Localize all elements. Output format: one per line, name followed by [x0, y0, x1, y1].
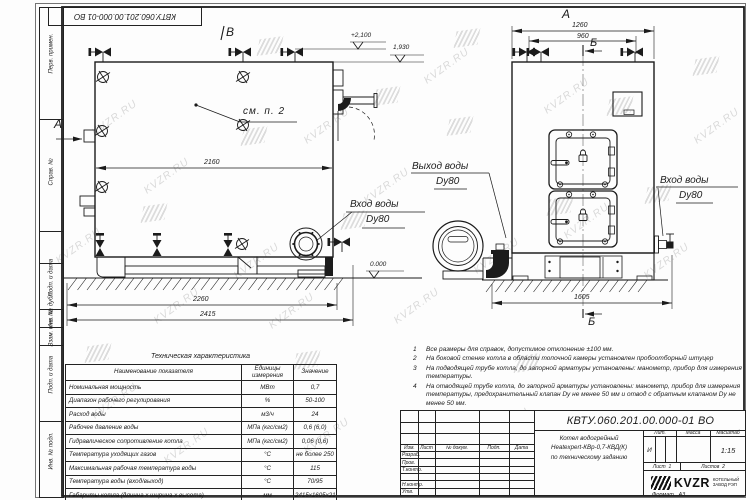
tech-header-name: Наименование показателя [66, 365, 242, 381]
tech-table-title: Техническая характеристика [65, 353, 336, 364]
param-name: Расход воды [66, 408, 242, 422]
col-header-list: Лист [418, 445, 435, 451]
margin-divider [40, 119, 63, 120]
margin-label: Перв. примен. [49, 51, 55, 74]
note-number: 2 [413, 355, 420, 363]
param-name: Максимальная рабочая температура воды [66, 462, 242, 476]
margin-label: Подп. и дата [49, 371, 55, 394]
param-units: °С [242, 475, 294, 489]
param-units: м3/ч [242, 408, 294, 422]
note-text: Все размеры для справок, допустимое откл… [426, 346, 613, 354]
param-units: МПа (кгс/см2) [242, 435, 294, 449]
param-value: не более 250 [294, 448, 337, 462]
sig-row-label: Разраб. [402, 452, 435, 458]
label-water-inlet-front-dy: Dy80 [679, 191, 702, 201]
label-water-outlet-dy: Dy80 [436, 177, 459, 187]
tech-characteristics: Техническая характеристика Наименование … [65, 353, 336, 500]
table-row: Номинальная мощностьМВт0,7 [66, 381, 337, 395]
tech-header-value: Значение [294, 365, 337, 381]
dim-side-width: 2160 [204, 159, 220, 166]
param-name: Диапазон рабочего регулирования [66, 394, 242, 408]
param-name: Номинальная мощность [66, 381, 242, 395]
scale-value: 1:15 [710, 437, 746, 463]
lit-header: Лит. [644, 430, 676, 437]
product-name-line1: Котел водогрейный [535, 434, 643, 443]
param-name: Габариты котла (длинна х ширина х высота… [66, 489, 242, 500]
param-value: 2415х1605х2100 [294, 489, 337, 500]
tech-table: Наименование показателя Единицы измерени… [65, 364, 337, 500]
param-name: Рабочее давление воды [66, 421, 242, 435]
margin-label: Взам. инв. № [49, 324, 55, 347]
format-label: Формат А3 [652, 493, 685, 499]
param-name: Температура уходящих газов [66, 448, 242, 462]
product-name-line3: по техническому заданию [535, 453, 643, 462]
sheet-count-row: Лист 1 Листов 2 [644, 463, 746, 471]
doc-number: КВТУ.060.201.00.000-01 ВО [567, 415, 715, 427]
param-value: 24 [294, 408, 337, 422]
org-name: КОТЕЛЬНЫЙ ЗАВОД РЭП [713, 478, 739, 488]
side-view [56, 26, 425, 326]
param-name: Температура воды (вход/выход) [66, 475, 242, 489]
dim-front-len: 1605 [574, 294, 590, 301]
tech-table-header-row: Наименование показателя Единицы измерени… [66, 365, 337, 381]
kvzr-logo-icon [651, 476, 671, 490]
table-row: Температура воды (вход/выход)°С70/95 [66, 475, 337, 489]
param-value: 0,06 (0,6) [294, 435, 337, 449]
doc-number-top-cell: КВТУ.060.201.00.000-01 ВО [48, 7, 202, 26]
table-row: Диапазон рабочего регулирования%50-100 [66, 394, 337, 408]
sig-row-label: Т.контр. [402, 467, 435, 473]
list-item: 2На боковой стенке котла в области топоч… [413, 355, 743, 363]
sig-row-label: Н.контр. [402, 482, 435, 488]
format-word: Формат [652, 492, 674, 498]
level-mark-duct: 1,930 [393, 45, 409, 52]
param-units: МВт [242, 381, 294, 395]
param-value: 0,6 (6,0) [294, 421, 337, 435]
title-block: Изм. Лист № докум. Подп. Дата Разраб. Пр… [400, 410, 746, 496]
param-units: °С [242, 448, 294, 462]
format-value: А3 [678, 492, 685, 498]
tech-header-units: Единицы измерения [242, 365, 294, 381]
table-row: Температура уходящих газов°Сне более 250 [66, 448, 337, 462]
note-text: На подводящей трубе котла, до запорной а… [426, 365, 743, 382]
notes-list: 1Все размеры для справок, допустимое отк… [413, 346, 743, 409]
param-units: °С [242, 462, 294, 476]
label-water-inlet-side: Вход воды [350, 200, 399, 210]
doc-number-cell: КВТУ.060.201.00.000-01 ВО [535, 411, 746, 431]
dim-side-len1: 2260 [193, 296, 209, 303]
table-row: Габариты котла (длинна х ширина х высота… [66, 489, 337, 500]
note-text: На отводящей трубе котла, до запорной ар… [426, 383, 743, 408]
lit-value: И [644, 437, 655, 463]
label-water-outlet: Выход воды [412, 162, 468, 172]
section-marker-b-top: Б [590, 38, 597, 49]
mass-header: Масса [676, 430, 710, 437]
front-view [411, 26, 738, 318]
dim-side-len2: 2415 [200, 311, 216, 318]
section-marker-b-bottom: Б [588, 317, 595, 328]
dim-front-w2: 960 [577, 33, 589, 40]
table-row: Расход водым3/ч24 [66, 408, 337, 422]
drawing-sheet: KVZR.RU KVZR.RU KVZR.RU KVZR.RU KVZR.RU … [0, 0, 750, 500]
kvzr-logo-text: KVZR [674, 476, 710, 490]
label-water-inlet-front: Вход воды [660, 176, 709, 186]
sig-row-label: Пров. [402, 460, 435, 466]
sheet-label: Лист [653, 464, 666, 470]
level-mark-zero: 0.000 [370, 262, 386, 269]
list-item: 3На подводящей трубе котла, до запорной … [413, 365, 743, 382]
param-value: 70/95 [294, 475, 337, 489]
param-value: 0,7 [294, 381, 337, 395]
table-row: Гидравлическое сопротивление котлаМПа (к… [66, 435, 337, 449]
param-units: МПа (кгс/см2) [242, 421, 294, 435]
param-units: мм [242, 489, 294, 500]
col-header-izm: Изм. [401, 445, 418, 451]
title-block-signature-grid: Изм. Лист № докум. Подп. Дата Разраб. Пр… [401, 411, 534, 495]
note-number: 1 [413, 346, 420, 354]
margin-divider [40, 231, 63, 232]
margin-label: Справ. № [49, 163, 55, 186]
sheet-value: 1 [668, 464, 671, 470]
lit-mass-scale-grid: Лит. Масса Масштаб И 1:15 [644, 430, 746, 463]
left-margin-strip: Перв. примен. Справ. № Подп. и дата Инв.… [39, 7, 64, 498]
section-marker-v: В [226, 26, 234, 38]
note-number: 3 [413, 365, 420, 382]
note-text: На боковой стенке котла в области топочн… [426, 355, 713, 363]
callout-see-note-2: см. п. 2 [243, 107, 285, 117]
col-header-sign: Подп. [479, 445, 509, 451]
list-item: 4На отводящей трубе котла, до запорной а… [413, 383, 743, 408]
param-name: Гидравлическое сопротивление котла [66, 435, 242, 449]
title-block-main: КВТУ.060.201.00.000-01 ВО Котел водогрей… [534, 411, 746, 495]
table-row: Максимальная рабочая температура воды°С1… [66, 462, 337, 476]
param-units: % [242, 394, 294, 408]
org-name-line2: ЗАВОД РЭП [713, 483, 739, 488]
product-name-cell: Котел водогрейный Heatexpert-КВр-0,7-КВД… [535, 430, 644, 495]
param-value: 115 [294, 462, 337, 476]
scale-header: Масштаб [710, 430, 746, 437]
margin-label: Инв. № подл. [49, 447, 55, 470]
col-header-date: Дата [509, 445, 534, 451]
table-row: Рабочее давление водыМПа (кгс/см2)0,6 (6… [66, 421, 337, 435]
sig-row-label: Утв. [402, 489, 435, 495]
sheets-value: 2 [722, 464, 725, 470]
level-mark-top: +2,100 [351, 33, 371, 40]
col-header-doc: № докум. [435, 445, 479, 451]
note-number: 4 [413, 383, 420, 408]
margin-divider [40, 421, 63, 422]
product-name-line2: Heatexpert-КВр-0,7-КВД(К) [535, 443, 643, 452]
param-value: 50-100 [294, 394, 337, 408]
view-label-a-front: А [562, 8, 570, 20]
dim-front-w1: 1260 [572, 22, 588, 29]
doc-number-rotated: КВТУ.060.201.00.000-01 ВО [74, 12, 176, 21]
sheets-label: Листов [701, 464, 719, 470]
label-water-inlet-side-dy: Dy80 [366, 215, 389, 225]
list-item: 1Все размеры для справок, допустимое отк… [413, 346, 743, 354]
